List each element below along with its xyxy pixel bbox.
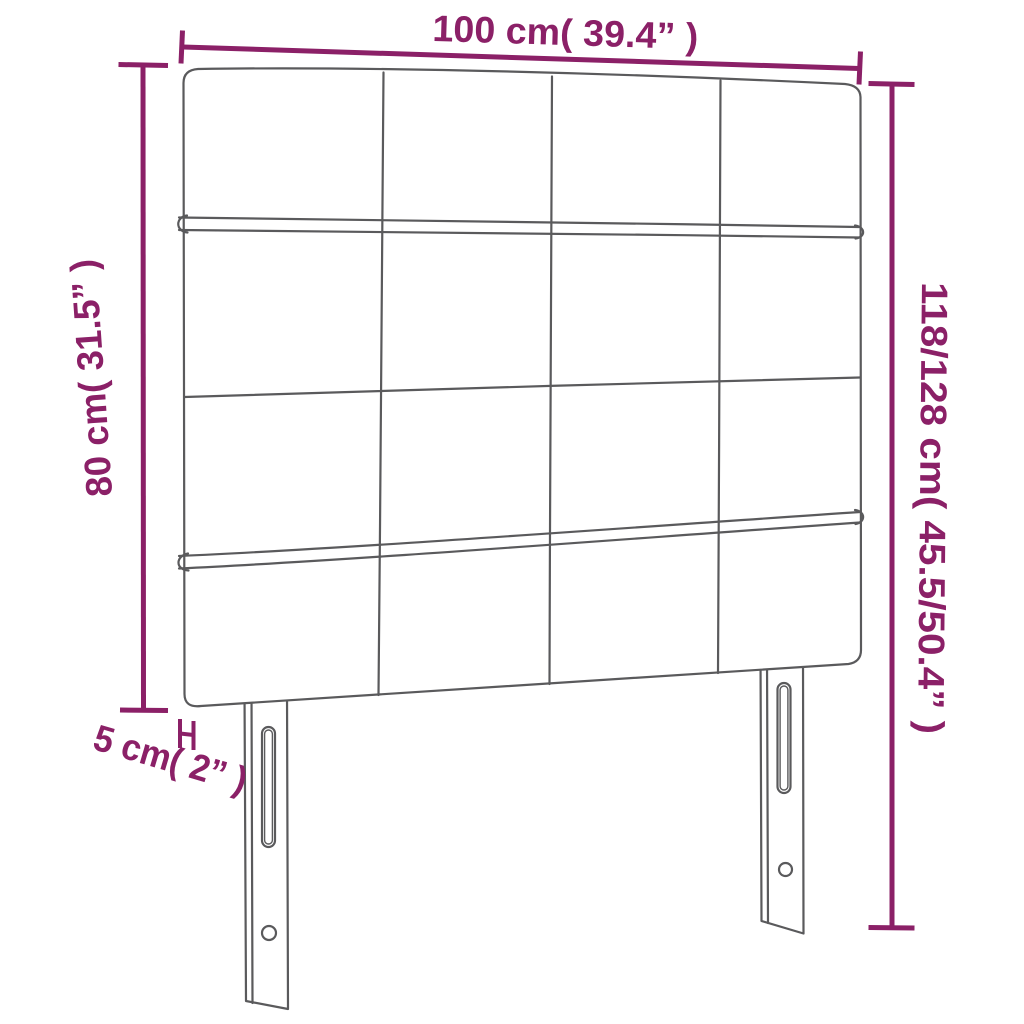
headboard-group (178, 68, 863, 706)
total-height-dimension-label: 118/128 cm( 45.5/50.4” ) (910, 282, 955, 734)
total-height-dimension-cap-top (869, 84, 915, 85)
left-leg-slot-inner (265, 730, 273, 844)
panel-height-dimension-cap-top (119, 65, 169, 66)
left-leg-edge-line (252, 692, 253, 1003)
thickness-bracket-bar (180, 734, 194, 736)
width-dimension-label: 100 cm( 39.4” ) (432, 8, 699, 57)
left-leg (245, 690, 289, 1009)
right-leg-edge-line (767, 657, 768, 923)
total-height-dimension-cap-bottom (869, 928, 915, 929)
right-leg (761, 655, 804, 934)
diagram-page: 100 cm( 39.4” ) 80 cm( 31.5” ) 118/128 c… (0, 0, 1024, 1024)
panel-height-dimension-line (143, 66, 144, 710)
right-leg-slot-inner (780, 686, 788, 790)
thickness-dimension-label: 5 cm( 2” ) (89, 717, 252, 801)
panel-height-dimension-cap-bottom (120, 710, 168, 711)
legs-group (245, 655, 804, 1009)
right-leg-hole (779, 863, 792, 876)
width-dimension-cap-left (181, 31, 183, 64)
diagram-canvas: 100 cm( 39.4” ) 80 cm( 31.5” ) 118/128 c… (0, 0, 1024, 1024)
width-dimension-cap-right (859, 52, 861, 85)
panel-height-dimension-label: 80 cm( 31.5” ) (63, 258, 121, 498)
left-leg-hole (262, 926, 276, 940)
